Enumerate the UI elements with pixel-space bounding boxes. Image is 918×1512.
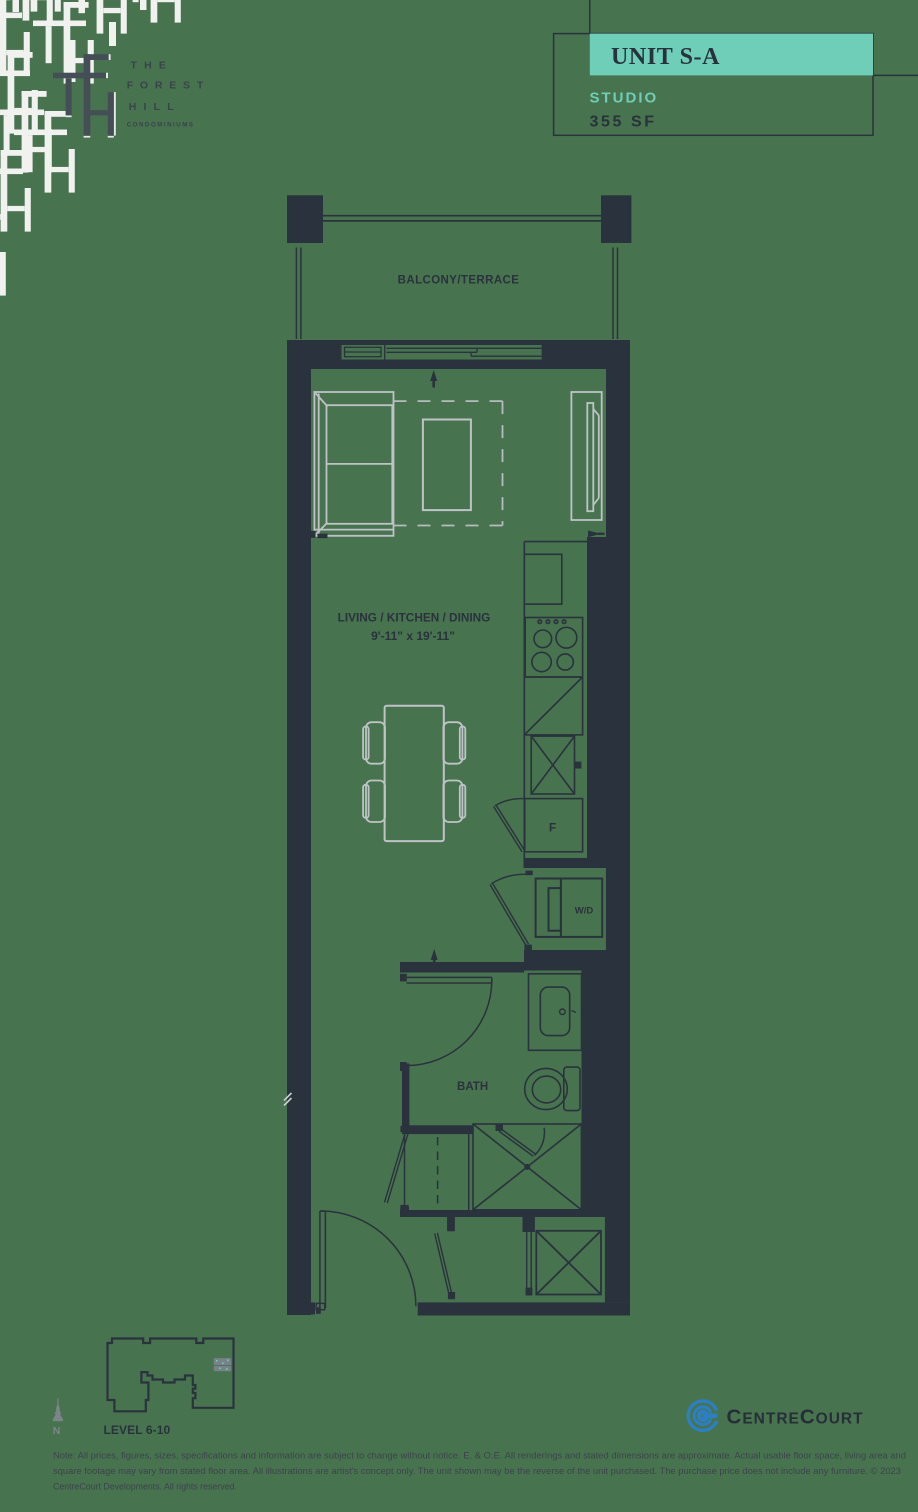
svg-text:BALCONY/TERRACE: BALCONY/TERRACE — [398, 275, 520, 287]
svg-text:W/D: W/D — [575, 906, 594, 917]
svg-text:LEVEL 6-10: LEVEL 6-10 — [104, 1423, 171, 1437]
svg-text:CentreCourt Developments. All: CentreCourt Developments. All rights res… — [53, 1482, 237, 1492]
svg-text:N: N — [53, 1425, 61, 1437]
svg-text:CONDOMINIUMS: CONDOMINIUMS — [127, 121, 195, 128]
svg-text:FOREST: FOREST — [127, 80, 210, 92]
svg-text:BATH: BATH — [457, 1081, 488, 1093]
svg-text:THE: THE — [131, 59, 174, 71]
svg-text:F: F — [549, 821, 556, 835]
svg-text:square footage may vary from s: square footage may vary from stated floo… — [53, 1466, 901, 1476]
svg-text:HILL: HILL — [129, 101, 181, 113]
svg-text:STUDIO: STUDIO — [590, 90, 659, 107]
svg-text:LIVING / KITCHEN / DINING: LIVING / KITCHEN / DINING — [338, 611, 491, 625]
svg-text:9'-11" x 19'-11": 9'-11" x 19'-11" — [371, 629, 455, 643]
svg-text:UNIT S-A: UNIT S-A — [611, 44, 720, 70]
svg-text:355 SF: 355 SF — [590, 114, 657, 131]
svg-text:Note: All prices, figures, siz: Note: All prices, figures, sizes, specif… — [53, 1451, 906, 1461]
